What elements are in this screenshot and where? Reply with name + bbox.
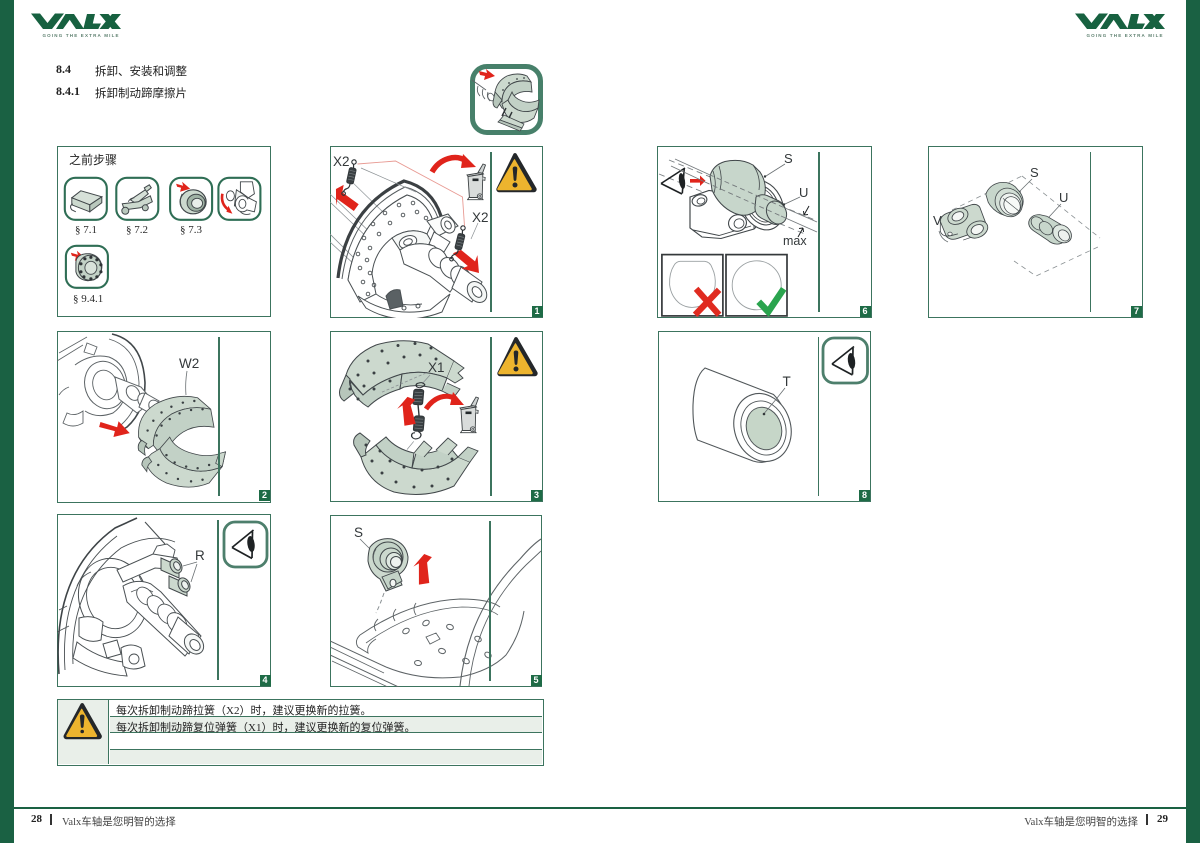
svg-text:W2: W2 bbox=[179, 356, 199, 371]
svg-text:X2: X2 bbox=[333, 154, 350, 169]
svg-text:X1: X1 bbox=[428, 360, 445, 375]
svg-text:S: S bbox=[354, 525, 363, 540]
svg-text:GOING THE EXTRA MILE: GOING THE EXTRA MILE bbox=[1087, 33, 1164, 38]
svg-text:X2: X2 bbox=[472, 210, 489, 225]
svg-text:max: max bbox=[783, 234, 807, 248]
svg-text:GOING THE EXTRA MILE: GOING THE EXTRA MILE bbox=[43, 33, 120, 38]
svg-text:S: S bbox=[1030, 165, 1039, 180]
svg-text:U: U bbox=[799, 185, 808, 200]
svg-text:U: U bbox=[1059, 190, 1068, 205]
svg-text:R: R bbox=[195, 548, 205, 563]
svg-text:T: T bbox=[782, 374, 790, 389]
svg-text:S: S bbox=[784, 151, 793, 166]
